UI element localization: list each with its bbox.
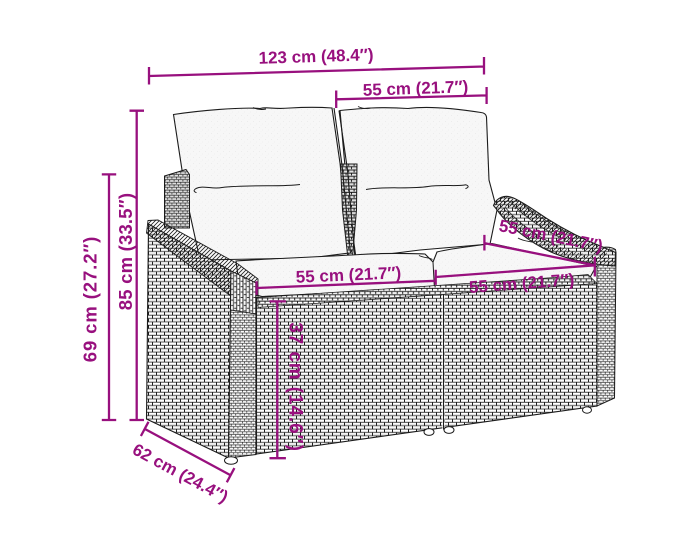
- svg-text:123 cm (48.4″): 123 cm (48.4″): [258, 45, 373, 68]
- svg-text:69 cm (27.2″): 69 cm (27.2″): [80, 236, 101, 363]
- svg-text:85 cm (33.5″): 85 cm (33.5″): [115, 193, 136, 310]
- svg-text:55 cm (21.7″): 55 cm (21.7″): [362, 77, 468, 100]
- svg-text:37 cm (14.6″): 37 cm (14.6″): [285, 322, 306, 452]
